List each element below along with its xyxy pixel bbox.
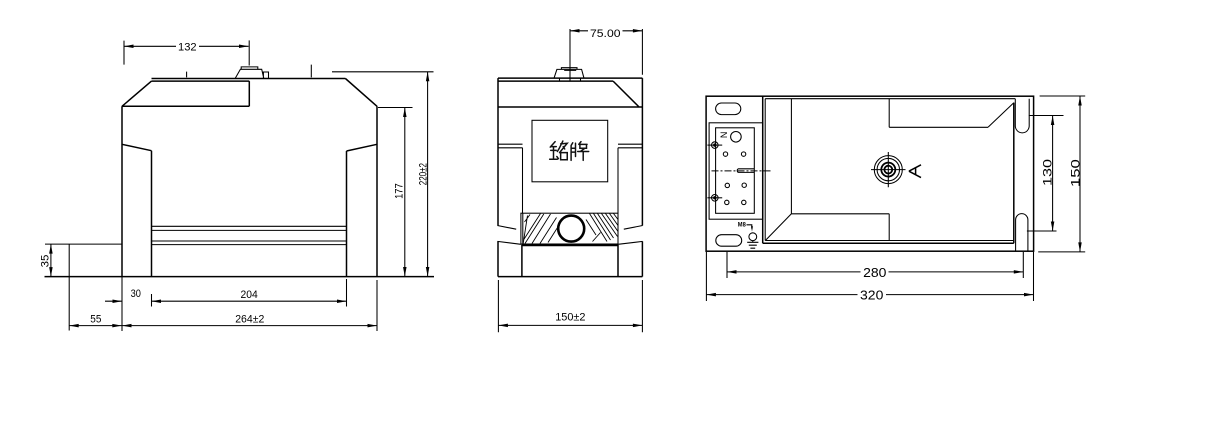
svg-text:M8: M8 xyxy=(738,222,746,229)
svg-text:150: 150 xyxy=(1068,159,1082,187)
svg-text:177: 177 xyxy=(393,183,405,199)
svg-text:132: 132 xyxy=(178,41,197,53)
svg-text:N: N xyxy=(718,132,728,139)
svg-text:320: 320 xyxy=(860,287,883,302)
svg-text:204: 204 xyxy=(241,289,258,301)
svg-text:55: 55 xyxy=(90,314,101,326)
svg-text:220±2: 220±2 xyxy=(417,163,429,185)
svg-text:30: 30 xyxy=(131,288,141,300)
svg-text:264±2: 264±2 xyxy=(235,314,264,326)
svg-text:130: 130 xyxy=(1040,159,1054,186)
svg-text:280: 280 xyxy=(863,265,886,280)
svg-text:35: 35 xyxy=(40,255,52,268)
svg-text:150±2: 150±2 xyxy=(555,312,585,324)
svg-text:75.00: 75.00 xyxy=(590,28,621,40)
